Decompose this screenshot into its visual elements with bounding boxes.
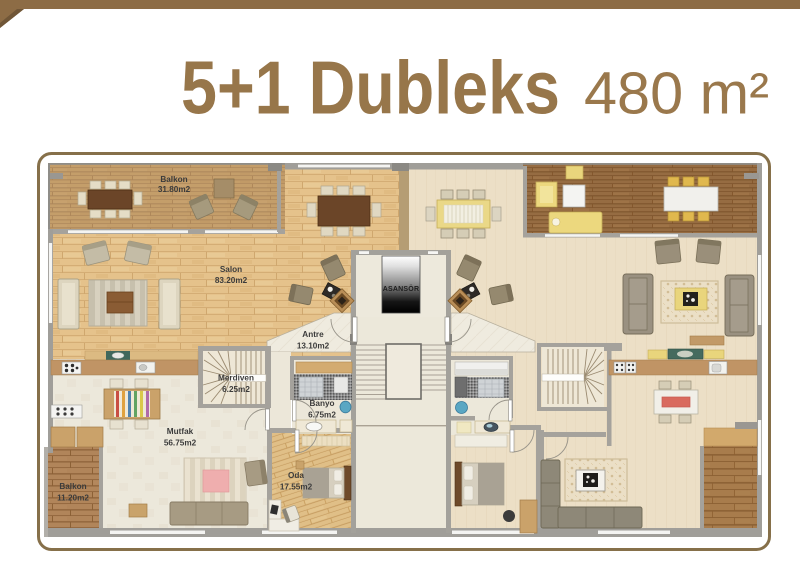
svg-text:Balkon: Balkon: [59, 482, 86, 491]
svg-text:17.55m2: 17.55m2: [280, 483, 313, 492]
svg-text:Merdiven: Merdiven: [218, 374, 254, 383]
svg-text:6.75m2: 6.75m2: [308, 411, 336, 420]
svg-text:13.10m2: 13.10m2: [297, 342, 330, 351]
svg-text:83.20m2: 83.20m2: [215, 276, 248, 285]
svg-text:ASANSÖR: ASANSÖR: [383, 284, 419, 293]
svg-text:6.25m2: 6.25m2: [222, 385, 250, 394]
svg-text:56.75m2: 56.75m2: [164, 439, 197, 448]
svg-text:31.80m2: 31.80m2: [158, 185, 191, 194]
svg-text:Antre: Antre: [302, 330, 324, 339]
svg-text:480 m²: 480 m²: [584, 61, 769, 127]
svg-text:Oda: Oda: [288, 471, 304, 480]
svg-text:Mutfak: Mutfak: [167, 427, 194, 436]
svg-text:Balkon: Balkon: [160, 175, 187, 184]
svg-text:Salon: Salon: [220, 265, 242, 274]
svg-text:Banyo: Banyo: [309, 399, 334, 408]
svg-text:11.20m2: 11.20m2: [57, 494, 89, 503]
svg-text:5+1 Dubleks: 5+1 Dubleks: [181, 46, 560, 130]
